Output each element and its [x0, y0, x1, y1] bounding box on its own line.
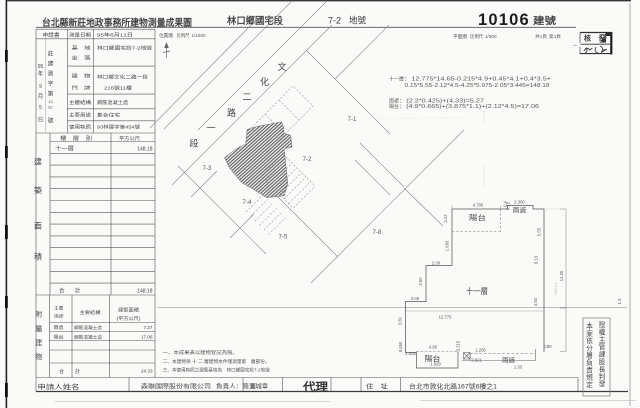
svg-text:3.12: 3.12: [443, 214, 448, 223]
svg-text:17.06: 17.06: [141, 335, 153, 340]
svg-text:森聯國際股份有限公司: 森聯國際股份有限公司: [141, 383, 211, 391]
svg-text:主要: 主要: [54, 305, 64, 312]
svg-text:13: 13: [48, 100, 52, 104]
svg-text:合: 合: [59, 368, 64, 375]
svg-text:住 址: 住 址: [366, 382, 389, 391]
svg-text:號: 號: [48, 117, 54, 125]
svg-text:陽台: 陽台: [54, 334, 64, 341]
svg-text:2.05: 2.05: [411, 296, 420, 301]
svg-text:蓋 章: 蓋 章: [250, 383, 268, 391]
svg-text:9.13: 9.13: [534, 255, 539, 264]
svg-text:權: 權: [599, 327, 606, 336]
svg-text:管: 管: [599, 342, 606, 351]
svg-text:陽台: 陽台: [469, 213, 486, 222]
svg-text:0.80: 0.80: [543, 344, 552, 349]
svg-text:9: 9: [39, 84, 42, 90]
svg-text:責: 責: [586, 365, 593, 374]
svg-text:日: 日: [38, 117, 44, 124]
svg-text:4.92: 4.92: [533, 297, 538, 306]
svg-text:5.55: 5.55: [537, 227, 542, 236]
svg-text:14.65: 14.65: [559, 270, 564, 281]
svg-text:依: 依: [586, 336, 593, 345]
svg-text:使用執照: 使用執照: [69, 124, 91, 131]
svg-text:2.300: 2.300: [514, 200, 525, 205]
svg-text:0.15: 0.15: [506, 201, 511, 210]
svg-text:2.921: 2.921: [471, 357, 482, 362]
svg-text:建: 建: [48, 60, 54, 68]
svg-text:申請人姓名: 申請人姓名: [38, 382, 80, 391]
svg-text:(平方公尺): (平方公尺): [117, 315, 142, 322]
svg-text:核: 核: [584, 34, 591, 43]
svg-text:莊: 莊: [48, 50, 54, 58]
svg-text:7-4: 7-4: [243, 199, 253, 206]
svg-text:代理: 代理: [302, 380, 328, 394]
svg-text:路: 路: [227, 107, 236, 118]
svg-text:案: 案: [586, 329, 593, 338]
svg-text:比例尺: 比例尺: [177, 32, 190, 39]
svg-text:判: 判: [599, 372, 606, 381]
svg-text:雨遮: 雨遮: [502, 357, 515, 365]
svg-text:雨遮: 雨遮: [513, 207, 527, 215]
svg-text:測量日期: 測量日期: [69, 32, 91, 39]
svg-text:發: 發: [599, 379, 606, 388]
svg-text:7-2: 7-2: [303, 156, 313, 163]
svg-text:第1頁: 第1頁: [549, 33, 561, 40]
svg-text:62: 62: [48, 106, 52, 110]
svg-text:24.33: 24.33: [141, 369, 153, 374]
svg-text:1.693: 1.693: [445, 240, 450, 251]
svg-text:7-8: 7-8: [373, 229, 383, 236]
svg-text:148.18: 148.18: [137, 289, 153, 295]
svg-text:用途: 用途: [54, 313, 64, 320]
svg-text:十一層: 十一層: [466, 286, 488, 296]
svg-text:林口鄉國宅段: 林口鄉國宅段: [227, 15, 283, 27]
svg-text:建號: 建號: [533, 15, 557, 27]
svg-text:集合住宅: 集合住宅: [97, 112, 120, 119]
svg-text:地號: 地號: [349, 15, 366, 26]
svg-text:2.30: 2.30: [432, 260, 441, 265]
svg-text:148.18: 148.18: [553, 282, 558, 295]
svg-text:1.3: 1.3: [617, 298, 622, 304]
svg-text:1/300: 1/300: [485, 34, 497, 39]
svg-text:216號11樓: 216號11樓: [104, 85, 132, 92]
svg-text:平方公尺: 平方公尺: [119, 135, 140, 142]
svg-text:7-1: 7-1: [348, 116, 358, 123]
svg-text:建築面積: 建築面積: [118, 307, 140, 314]
svg-text:分: 分: [586, 343, 593, 352]
svg-text:段: 段: [189, 138, 198, 149]
svg-text:二、本建物係 十 二 層建物本件僅測量第 層部份。: 二、本建物係 十 二 層建物本件僅測量第 層部份。: [163, 358, 270, 365]
svg-text:負: 負: [586, 358, 593, 367]
svg-text:坐 落: 坐 落: [72, 55, 91, 62]
svg-text:一: 一: [206, 123, 215, 133]
svg-text:95年6月12日: 95年6月12日: [97, 32, 133, 39]
svg-text:0.215: 0.215: [456, 340, 461, 351]
svg-text:計: 計: [75, 287, 81, 295]
svg-text:7.27: 7.27: [144, 325, 153, 330]
svg-text:計: 計: [75, 368, 80, 375]
svg-text:1.205: 1.205: [475, 347, 486, 352]
svg-text:陽台: 陽台: [389, 103, 399, 110]
svg-text:年: 年: [38, 70, 44, 78]
svg-text:十一層: 十一層: [55, 145, 74, 153]
svg-text:比例尺: 比例尺: [470, 33, 483, 40]
svg-text:建: 建: [34, 157, 42, 167]
svg-text:3.81: 3.81: [398, 316, 403, 325]
svg-text:主要結構: 主要結構: [80, 309, 102, 316]
svg-text:5: 5: [39, 105, 42, 111]
svg-text:位置圖: 位置圖: [159, 32, 173, 39]
svg-text:三、本使用執照之建築基地為 林口鄉國宅段7-2地號: 三、本使用執照之建築基地為 林口鄉國宅段7-2地號: [163, 366, 270, 373]
svg-text:148.18: 148.18: [137, 147, 153, 153]
svg-text:1/1500: 1/1500: [192, 33, 206, 38]
svg-text:申請書: 申請書: [43, 31, 60, 39]
svg-text:1.33: 1.33: [514, 364, 523, 369]
svg-text:月: 月: [38, 93, 44, 100]
svg-text:樓 層 別: 樓 層 別: [60, 135, 92, 142]
svg-text:股: 股: [599, 358, 606, 366]
svg-text:3.60: 3.60: [418, 277, 423, 286]
svg-text:93林建字第454號: 93林建字第454號: [97, 124, 140, 131]
svg-text:長: 長: [599, 365, 606, 373]
svg-text:7-2: 7-2: [328, 16, 341, 26]
svg-text:合: 合: [59, 287, 65, 295]
svg-text:課: 課: [599, 350, 606, 359]
svg-text:林口鄉文化二路一段: 林口鄉文化二路一段: [97, 74, 148, 81]
svg-text:字: 字: [48, 80, 54, 88]
svg-text:鋼筋混凝土造: 鋼筋混凝土造: [74, 334, 103, 341]
svg-text:：(4.9*0.665)+(3.875*1.1)+(2.12: ：(4.9*0.665)+(3.875*1.1)+(2.12*4.5)=17.0…: [399, 104, 539, 110]
svg-text:規: 規: [586, 373, 593, 382]
svg-text:雨遮: 雨遮: [54, 324, 64, 331]
svg-text:0.15*5.55-2.12*4.5-4.25*5.975-: 0.15*5.55-2.12*4.5-4.25*5.975-2.05*3.445…: [405, 83, 550, 89]
svg-text:門 牌: 門 牌: [72, 85, 91, 92]
svg-text:築: 築: [34, 185, 42, 195]
svg-text:7-3: 7-3: [203, 165, 213, 172]
svg-text:：12.775*14.65-0.215*4.9+0.45*4: ：12.775*14.65-0.215*4.9+0.45*4.1+0.4*3.5…: [404, 77, 551, 83]
svg-text:8.460: 8.460: [398, 341, 403, 352]
svg-text:測: 測: [48, 70, 54, 78]
svg-text:4.90: 4.90: [429, 344, 438, 349]
svg-text:面: 面: [34, 222, 42, 231]
svg-text:95: 95: [38, 64, 44, 70]
svg-text:主: 主: [599, 335, 606, 344]
svg-text:二: 二: [242, 92, 251, 102]
svg-text:1.005: 1.005: [405, 351, 416, 356]
svg-text:授: 授: [599, 320, 606, 329]
svg-text:物: 物: [35, 352, 42, 361]
svg-text:化: 化: [260, 76, 269, 87]
svg-text:積: 積: [34, 252, 42, 262]
svg-text:第: 第: [48, 90, 54, 98]
svg-text:屬: 屬: [35, 325, 42, 333]
svg-text:鋼筋混凝土造: 鋼筋混凝土造: [97, 99, 128, 106]
svg-text:主要用途: 主要用途: [69, 112, 91, 119]
svg-text:一、本成果表以建物登記為限。: 一、本成果表以建物登記為限。: [163, 349, 238, 356]
svg-text:4.700: 4.700: [473, 203, 484, 208]
svg-text:定: 定: [586, 380, 593, 389]
svg-text:10106: 10106: [478, 11, 530, 29]
svg-text:林口鄉國宅段7-2地號: 林口鄉國宅段7-2地號: [97, 45, 152, 52]
svg-text:建 物: 建 物: [72, 73, 91, 80]
svg-text:主體結構: 主體結構: [69, 99, 91, 106]
svg-text:12.775: 12.775: [439, 314, 452, 319]
svg-text:本: 本: [586, 322, 593, 331]
svg-text:文: 文: [277, 61, 286, 72]
svg-text:基 地: 基 地: [72, 45, 91, 52]
svg-text:層: 層: [586, 352, 593, 360]
svg-text:建: 建: [35, 338, 42, 347]
svg-text:7-5: 7-5: [279, 234, 289, 241]
svg-text:十一層: 十一層: [389, 76, 404, 83]
svg-text:1.829: 1.829: [430, 362, 441, 367]
svg-text:附: 附: [35, 310, 42, 319]
svg-text:鋼筋混凝土造: 鋼筋混凝土造: [74, 324, 103, 331]
svg-text:共1頁: 共1頁: [535, 33, 547, 40]
svg-text:台北市敦化北路167號6樓之1: 台北市敦化北路167號6樓之1: [409, 382, 497, 391]
